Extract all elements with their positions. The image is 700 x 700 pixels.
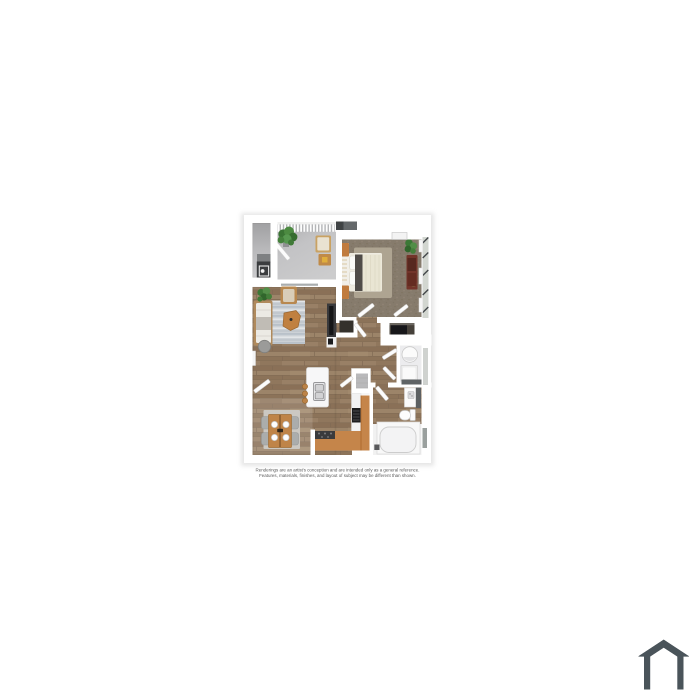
svg-text:Renderings are an artist's con: Renderings are an artist's conception an…: [256, 468, 420, 473]
svg-text:Features, materials, finishes,: Features, materials, finishes, and layou…: [259, 473, 416, 478]
